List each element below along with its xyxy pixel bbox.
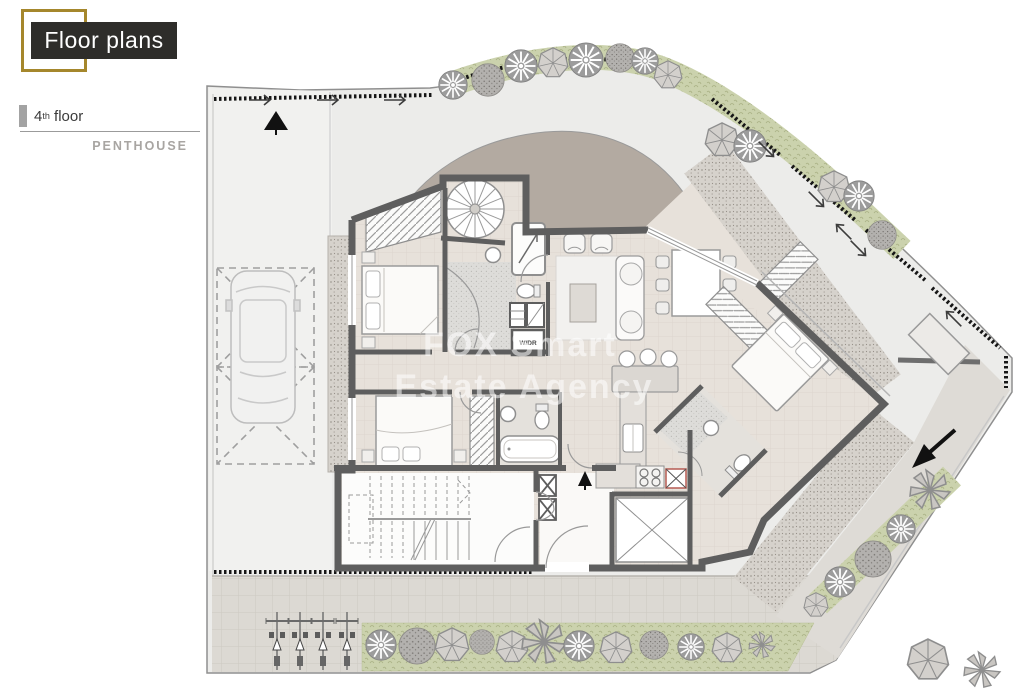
toilet (535, 411, 549, 429)
page-title: Floor plans (31, 22, 177, 59)
bar-stool (661, 351, 677, 367)
floor-plan-drawing: W/DR (0, 0, 1024, 700)
bedroom-2 (362, 396, 494, 466)
floor-ordinal: th (42, 111, 50, 121)
wardrobe (470, 396, 494, 466)
bar-stool (640, 349, 656, 365)
spiral-staircase (446, 180, 504, 238)
slide: W/DR (0, 0, 1024, 700)
floor-subtitle: PENTHOUSE (20, 139, 188, 153)
divider-line (20, 131, 200, 132)
bar-stool (619, 351, 635, 367)
sink (501, 407, 516, 422)
floor-label-bar (19, 105, 27, 127)
armchair (591, 234, 612, 253)
watermark-line1: FOX Smart (423, 326, 617, 364)
sink (704, 421, 719, 436)
toilet (517, 284, 535, 298)
armchair (564, 234, 585, 253)
floor-number: 4 (34, 108, 42, 125)
watermark-line2: Estate Agency (394, 368, 653, 406)
page-title-text: Floor plans (44, 27, 163, 54)
stove (636, 466, 664, 488)
sink (486, 248, 501, 263)
void-shaft (616, 498, 688, 562)
coffee-table (570, 284, 596, 322)
car (226, 271, 300, 423)
floor-label: 4th floor (19, 104, 83, 128)
floor-word: floor (54, 108, 83, 125)
